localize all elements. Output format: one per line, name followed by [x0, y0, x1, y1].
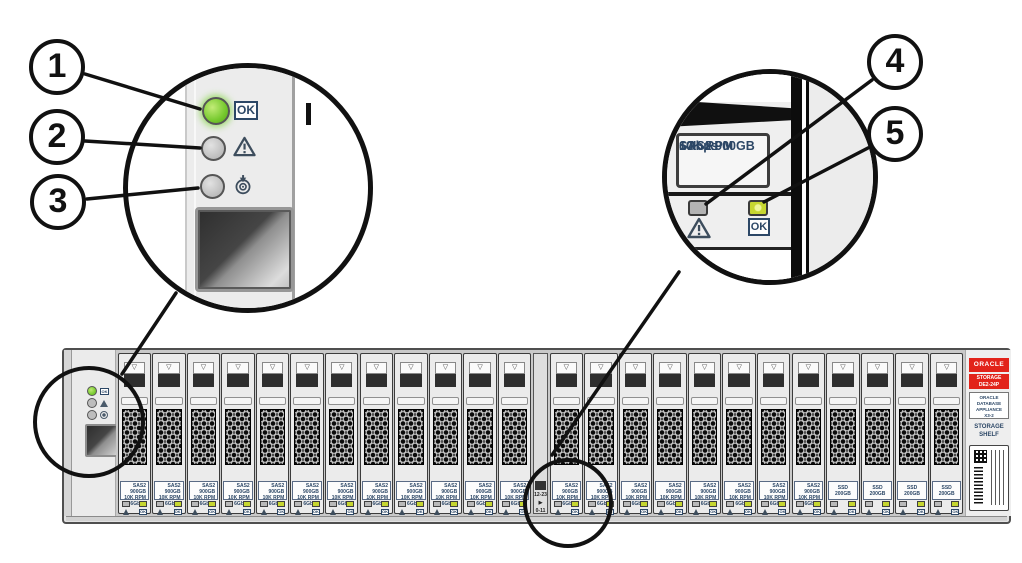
latch-arrow-icon: ▽: [909, 364, 914, 371]
callout-2: 2: [29, 109, 85, 165]
drive-vent-grille: [692, 409, 717, 465]
drive-vent-grille: [934, 409, 959, 465]
drive-latch-bar[interactable]: [691, 397, 718, 405]
drive-fault-led: [502, 501, 510, 507]
warning-icon: [693, 509, 699, 515]
type-line: STORAGE: [969, 423, 1009, 431]
latch-arrow-icon: ▽: [304, 364, 309, 371]
drive-label: SAS2 900GB10K RPM6Gbps: [223, 481, 252, 500]
drive-vent-grille: [830, 409, 855, 465]
drive[interactable]: ▽ SAS2 900GB10K RPM6Gbps OK: [221, 353, 254, 514]
drive-release-button[interactable]: ▽: [469, 362, 490, 374]
drive-vent-grille: [329, 409, 354, 465]
warning-icon: [900, 509, 906, 515]
drive-ok-label: OK: [917, 509, 925, 515]
drive[interactable]: ▽ SSD 200GB OK: [895, 353, 928, 514]
drive-latch-recess: [936, 374, 957, 387]
drive-ok-led: [450, 501, 458, 507]
drive-release-button[interactable]: ▽: [400, 362, 421, 374]
drive-ok-label: OK: [675, 509, 683, 515]
drive-latch-bar[interactable]: [898, 397, 925, 405]
drive-latch-recess: [296, 374, 317, 387]
drive-vent-grille: [865, 409, 890, 465]
warning-icon: [434, 509, 440, 515]
label-line: SAS2 900GB: [656, 483, 681, 495]
warning-icon: [226, 509, 232, 515]
adjacent-drive: [809, 74, 873, 280]
warning-icon: [762, 509, 768, 515]
drive-latch-bar[interactable]: [293, 397, 320, 405]
serial-text-block: [991, 450, 1005, 505]
barcode: [974, 467, 983, 505]
drive[interactable]: ▽ SSD 200GB OK: [826, 353, 859, 514]
drive[interactable]: ▽ SAS2 900GB10K RPM6Gbps OK: [653, 353, 686, 514]
ok-label: OK: [748, 218, 770, 236]
drive-ok-led: [277, 501, 285, 507]
product-line: X3-2: [970, 413, 1008, 419]
latch-arrow-icon: ▽: [166, 364, 171, 371]
drive-ok-label: OK: [951, 509, 959, 515]
label-line: SAS2 900GB: [224, 483, 249, 495]
drive-label: SAS2 900GB10K RPM6Gbps: [362, 481, 391, 500]
drive-ok-led: [485, 501, 493, 507]
drive-label: SAS2 900GB10K RPM6Gbps: [431, 481, 460, 500]
drive-latch-recess: [331, 374, 352, 387]
drive-latch-recess: [867, 374, 888, 387]
drive-latch-bar[interactable]: [656, 397, 683, 405]
latch-arrow-icon: ▽: [633, 364, 638, 371]
latch-arrow-icon: ▽: [702, 364, 707, 371]
drive-latch-bar[interactable]: [587, 397, 614, 405]
drive-release-button[interactable]: ▽: [366, 362, 387, 374]
drive-latch-recess: [832, 374, 853, 387]
drive-latch-recess: [435, 374, 456, 387]
warning-icon: [157, 509, 163, 515]
release-latch[interactable]: [195, 207, 294, 292]
latch-arrow-icon: ▽: [477, 364, 482, 371]
drive-fault-led: [156, 501, 164, 507]
drive-fault-led: [225, 501, 233, 507]
drive-fault-led: [726, 501, 734, 507]
drive-release-button[interactable]: ▽: [625, 362, 646, 374]
drive-label: SSD 200GB: [863, 481, 892, 500]
drive-vent-grille: [260, 409, 285, 465]
latch-arrow-icon: ▽: [806, 364, 811, 371]
drive[interactable]: ▽ SAS2 900GB10K RPM6Gbps OK: [792, 353, 825, 514]
drive[interactable]: ▽ SAS2 900GB10K RPM6Gbps OK: [290, 353, 323, 514]
label-line: 6Gbps: [679, 139, 718, 154]
drive-latch-recess: [556, 374, 577, 387]
label-line: SAS2 900GB: [397, 483, 422, 495]
drive-latch-bar[interactable]: [553, 397, 580, 405]
drive-vent-grille: [761, 409, 786, 465]
drive-ok-label: OK: [208, 509, 216, 515]
latch-arrow-icon: ▽: [840, 364, 845, 371]
drive-label: SSD 200GB: [897, 481, 926, 500]
drive-vent-grille: [657, 409, 682, 465]
drive-ok-led: [346, 501, 354, 507]
drive-top: [667, 74, 791, 102]
power-ok-led: [202, 97, 230, 125]
model-badge: STORAGE DE2-24P: [969, 374, 1009, 389]
drive-ok-led: [675, 501, 683, 507]
drive[interactable]: ▽ SSD 200GB OK: [861, 353, 894, 514]
drive-ok-led: [744, 501, 752, 507]
warning-icon: [330, 509, 336, 515]
drive-vent-grille: [433, 409, 458, 465]
drive-fault-led: [830, 501, 838, 507]
latch-arrow-icon: ▽: [270, 364, 275, 371]
drive-fault-led: [364, 501, 372, 507]
drive-vent-grille: [899, 409, 924, 465]
drive-latch-bar[interactable]: [224, 397, 251, 405]
drive-latch-recess: [728, 374, 749, 387]
drive-latch-bar[interactable]: [933, 397, 960, 405]
left-magnifier-circle: OK: [123, 63, 373, 313]
drive-label: SAS2 900GB10K RPM6Gbps: [120, 481, 149, 500]
drive-fault-led: [329, 501, 337, 507]
label-line: SAS2 900GB: [155, 483, 180, 495]
drive-latch-recess: [798, 374, 819, 387]
drive-latch-recess: [158, 374, 179, 387]
drive-release-button[interactable]: ▽: [296, 362, 317, 374]
label-separator: [667, 192, 791, 196]
drive-latch-bar[interactable]: [155, 397, 182, 405]
label-line: SAS2 900GB: [121, 483, 146, 495]
warning-icon: [831, 509, 837, 515]
drive-fault-led: [688, 200, 708, 216]
label-line: SAS2 900GB: [259, 483, 284, 495]
drive-label: SAS2 900GB10K RPM6Gbps: [621, 481, 650, 500]
callout-1: 1: [29, 39, 85, 95]
locate-icon: [234, 174, 252, 195]
drive-latch-recess: [901, 374, 922, 387]
drive-label: SAS2 900GB10K RPM6Gbps: [154, 481, 183, 500]
drive-ok-led: [882, 501, 890, 507]
drive-fault-led: [294, 501, 302, 507]
drive-release-button[interactable]: ▽: [728, 362, 749, 374]
drive-gap-stripe: [791, 74, 802, 280]
drive-release-button[interactable]: ▽: [193, 362, 214, 374]
latch-arrow-icon: ▽: [443, 364, 448, 371]
drive-release-button[interactable]: ▽: [262, 362, 283, 374]
type-line: SHELF: [969, 431, 1009, 439]
drive-ok-label: OK: [450, 509, 458, 515]
label-line: SAS2 900GB: [432, 483, 457, 495]
drive-ok-label: OK: [485, 509, 493, 515]
drive-label: SAS2 900GB10K RPM6Gbps: [189, 481, 218, 500]
drive-release-button[interactable]: ▽: [556, 362, 577, 374]
label-line: SAS2 900GB: [328, 483, 353, 495]
drive-ok-led: [312, 501, 320, 507]
latch-arrow-icon: ▽: [512, 364, 517, 371]
fault-led: [201, 136, 226, 161]
drive-ok-led: [208, 501, 216, 507]
drive-latch-bar[interactable]: [190, 397, 217, 405]
drive-ok-label: OK: [243, 509, 251, 515]
drive-fault-led: [692, 501, 700, 507]
drive-release-button[interactable]: ▽: [227, 362, 248, 374]
drive-label: SAS2 900GB10K RPM6Gbps: [655, 481, 684, 500]
drive-vent-grille: [554, 409, 579, 465]
warning-icon: [935, 509, 941, 515]
warning-icon: [399, 509, 405, 515]
drive-latch-bar[interactable]: [725, 397, 752, 405]
drive-latch-recess: [469, 374, 490, 387]
drive-release-button[interactable]: ▽: [435, 362, 456, 374]
model-line: STORAGE: [969, 375, 1009, 382]
drive-latch-bar[interactable]: [397, 397, 424, 405]
drive-latch-recess: [763, 374, 784, 387]
latch-arrow-icon: ▽: [235, 364, 240, 371]
drive-latch-bar[interactable]: [622, 397, 649, 405]
label-line: SAS2 900GB: [190, 483, 215, 495]
drive-ok-label: OK: [640, 509, 648, 515]
drive-latch-bar[interactable]: [829, 397, 856, 405]
label-line: SAS2 900GB: [466, 483, 491, 495]
latch-arrow-icon: ▽: [771, 364, 776, 371]
drive-release-button[interactable]: ▽: [694, 362, 715, 374]
drive-ok-led: [381, 501, 389, 507]
latch-arrow-icon: ▽: [339, 364, 344, 371]
drive-vent-grille: [294, 409, 319, 465]
drive-vent-grille: [364, 409, 389, 465]
drive-ok-led: [951, 501, 959, 507]
drive[interactable]: ▽ SAS2 900GB10K RPM6Gbps OK: [688, 353, 721, 514]
drive[interactable]: ▽ SAS2 900GB10K RPM6Gbps OK: [722, 353, 755, 514]
drive-latch-bar[interactable]: [466, 397, 493, 405]
drive-latch-recess: [193, 374, 214, 387]
label-line: SAS2 900GB: [293, 483, 318, 495]
latch-arrow-icon: ▽: [408, 364, 413, 371]
drive-ok-led: [813, 501, 821, 507]
right-magnifier-circle: SAS2 900GB 10K RPM 6Gbps OK: [662, 69, 878, 285]
drive-release-button[interactable]: ▽: [901, 362, 922, 374]
drive-fault-led: [934, 501, 942, 507]
warning-icon: [123, 509, 129, 515]
drive-label: SAS2 900GB10K RPM6Gbps: [724, 481, 753, 500]
ok-label: OK: [234, 101, 258, 120]
drive-bay-left: ▽ SAS2 900GB10K RPM6Gbps OK ▽ SAS2 900GB…: [117, 353, 532, 514]
warning-icon: [192, 509, 198, 515]
drive-latch-recess: [590, 374, 611, 387]
drive-label: SAS2 900GB10K RPM6Gbps: [292, 481, 321, 500]
drive-ok-led: [243, 501, 251, 507]
warning-icon: [233, 136, 256, 157]
drive-latch-recess: [227, 374, 248, 387]
latch-arrow-icon: ▽: [201, 364, 206, 371]
drive-release-button[interactable]: ▽: [936, 362, 957, 374]
drive-release-button[interactable]: ▽: [331, 362, 352, 374]
model-line: DE2-24P: [969, 382, 1009, 389]
latch-arrow-icon: ▽: [598, 364, 603, 371]
drive-label: SAS2 900GB10K RPM6Gbps: [327, 481, 356, 500]
callout-4: 4: [867, 34, 923, 90]
drive[interactable]: ▽ SAS2 900GB10K RPM6Gbps OK: [360, 353, 393, 514]
drive-ok-label: OK: [416, 509, 424, 515]
warning-icon: [295, 509, 301, 515]
drive-release-button[interactable]: ▽: [659, 362, 680, 374]
drive-latch-bar[interactable]: [363, 397, 390, 405]
drive-fault-led: [191, 501, 199, 507]
label-line: SAS2 900GB: [760, 483, 785, 495]
drive[interactable]: ▽ SAS2 900GB10K RPM6Gbps OK: [463, 353, 496, 514]
drive-ok-label: OK: [277, 509, 285, 515]
drive-latch-bar[interactable]: [259, 397, 286, 405]
latch-arrow-icon: ▽: [374, 364, 379, 371]
drive[interactable]: ▽ SAS2 900GB10K RPM6Gbps OK: [394, 353, 427, 514]
drive-release-button[interactable]: ▽: [867, 362, 888, 374]
callout-5: 5: [867, 106, 923, 162]
label-line: SAS2 900GB: [363, 483, 388, 495]
serial-label: [969, 445, 1009, 511]
drive-ok-led: [748, 200, 768, 216]
drive-label: SAS2 900GB10K RPM6Gbps: [396, 481, 425, 500]
drive-vent-grille: [191, 409, 216, 465]
drive-ok-led: [709, 501, 717, 507]
drive-label: SAS2 900GB10K RPM6Gbps: [759, 481, 788, 500]
drive-latch-recess: [366, 374, 387, 387]
highlight-ring-drive: [523, 458, 613, 548]
drive-release-button[interactable]: ▽: [798, 362, 819, 374]
drive-latch-recess: [504, 374, 525, 387]
panel-slot-mark: [306, 103, 311, 125]
shelf-type-label: STORAGE SHELF: [969, 423, 1009, 439]
drive-ok-led: [640, 501, 648, 507]
warning-icon: [503, 509, 509, 515]
drive[interactable]: ▽ SAS2 900GB10K RPM6Gbps OK: [325, 353, 358, 514]
drive-ok-label: OK: [813, 509, 821, 515]
warning-icon: [365, 509, 371, 515]
drive-vent-grille: [623, 409, 648, 465]
chassis-gap: [667, 250, 791, 280]
highlight-ring-endcap: [33, 366, 145, 478]
drive-fault-led: [398, 501, 406, 507]
hardware-diagram: 1 2 3 4 5 OK SAS2 900GB 10K: [0, 0, 1022, 563]
drive-ok-label: OK: [381, 509, 389, 515]
drive-ok-label: OK: [744, 509, 752, 515]
drive-label: SSD 200GB: [932, 481, 961, 500]
drive-ok-led: [174, 501, 182, 507]
drive-vent-grille: [467, 409, 492, 465]
qr-code: [974, 450, 987, 463]
drive-latch-bar[interactable]: [501, 397, 528, 405]
drive-ok-led: [917, 501, 925, 507]
oracle-logo: ORACLE: [969, 358, 1009, 372]
drive-vent-grille: [156, 409, 181, 465]
label-line: SAS2 900GB: [622, 483, 647, 495]
drive-latch-bar[interactable]: [864, 397, 891, 405]
drive-ok-label: OK: [174, 509, 182, 515]
drive-release-button[interactable]: ▽: [763, 362, 784, 374]
drive-fault-led: [122, 501, 130, 507]
drive-fault-led: [467, 501, 475, 507]
label-line: SAS2 900GB: [795, 483, 820, 495]
drive-fault-led: [796, 501, 804, 507]
warning-icon: [687, 217, 711, 239]
drive-label: SAS2 900GB10K RPM6Gbps: [794, 481, 823, 500]
drive-ok-led: [416, 501, 424, 507]
drive[interactable]: ▽ SAS2 900GB10K RPM6Gbps OK: [429, 353, 462, 514]
drive-latch-bar[interactable]: [328, 397, 355, 405]
label-line: SAS2 900GB: [725, 483, 750, 495]
warning-icon: [866, 509, 872, 515]
drive-label: SAS2 900GB10K RPM6Gbps: [258, 481, 287, 500]
drive-latch-recess: [694, 374, 715, 387]
drive-ok-label: OK: [848, 509, 856, 515]
warning-icon: [468, 509, 474, 515]
drive-capacity-label: SAS2 900GB 10K RPM 6Gbps: [676, 133, 770, 188]
locate-led: [200, 174, 225, 199]
drive-ok-led: [139, 501, 147, 507]
drive-ok-led: [778, 501, 786, 507]
drive-fault-led: [623, 501, 631, 507]
warning-icon: [797, 509, 803, 515]
drive-release-button[interactable]: ▽: [590, 362, 611, 374]
drive-ok-led: [848, 501, 856, 507]
drive-vent-grille: [502, 409, 527, 465]
latch-arrow-icon: ▽: [736, 364, 741, 371]
drive-fault-led: [865, 501, 873, 507]
right-endcap-panel: ORACLE STORAGE DE2-24P ORACLE DATABASE A…: [965, 350, 1011, 516]
drive-latch-recess: [625, 374, 646, 387]
drive-ok-label: OK: [139, 509, 147, 515]
callout-3: 3: [30, 174, 86, 230]
drive-vent-grille: [398, 409, 423, 465]
drive[interactable]: ▽ SAS2 900GB10K RPM6Gbps OK: [757, 353, 790, 514]
drive-fault-led: [657, 501, 665, 507]
drive-vent-grille: [726, 409, 751, 465]
drive-label: SAS2 900GB10K RPM6Gbps: [465, 481, 494, 500]
drive-release-button[interactable]: ▽: [832, 362, 853, 374]
drive-ok-label: OK: [882, 509, 890, 515]
drive-latch-bar[interactable]: [760, 397, 787, 405]
drive-vent-grille: [588, 409, 613, 465]
latch-arrow-icon: ▽: [132, 364, 137, 371]
warning-icon: [658, 509, 664, 515]
latch-arrow-icon: ▽: [875, 364, 880, 371]
drive-latch-recess: [262, 374, 283, 387]
drive-latch-recess: [659, 374, 680, 387]
label-line: SAS2 900GB: [691, 483, 716, 495]
warning-icon: [624, 509, 630, 515]
latch-arrow-icon: ▽: [944, 364, 949, 371]
drive-label: SAS2 900GB10K RPM6Gbps: [690, 481, 719, 500]
drive-fault-led: [260, 501, 268, 507]
drive-latch-bar[interactable]: [432, 397, 459, 405]
drive-ok-label: OK: [346, 509, 354, 515]
drive-fault-led: [899, 501, 907, 507]
drive-ok-label: OK: [778, 509, 786, 515]
drive[interactable]: ▽ SAS2 900GB10K RPM6Gbps OK: [619, 353, 652, 514]
drive[interactable]: ▽ SAS2 900GB10K RPM6Gbps OK: [152, 353, 185, 514]
drive-vent-grille: [796, 409, 821, 465]
drive-latch-bar[interactable]: [795, 397, 822, 405]
drive[interactable]: ▽ SSD 200GB OK: [930, 353, 963, 514]
label-line: SAS2 900GB: [501, 483, 526, 495]
drive[interactable]: ▽ SAS2 900GB10K RPM6Gbps OK: [187, 353, 220, 514]
drive-latch-recess: [400, 374, 421, 387]
drive-label: SSD 200GB: [828, 481, 857, 500]
drive[interactable]: ▽ SAS2 900GB10K RPM6Gbps OK: [256, 353, 289, 514]
warning-icon: [727, 509, 733, 515]
latch-arrow-icon: ▽: [667, 364, 672, 371]
drive-release-button[interactable]: ▽: [158, 362, 179, 374]
drive-release-button[interactable]: ▽: [504, 362, 525, 374]
drive-ok-label: OK: [709, 509, 717, 515]
drive-release-button[interactable]: ▽: [124, 362, 145, 374]
product-badge: ORACLE DATABASE APPLIANCE X3-2: [969, 392, 1009, 419]
